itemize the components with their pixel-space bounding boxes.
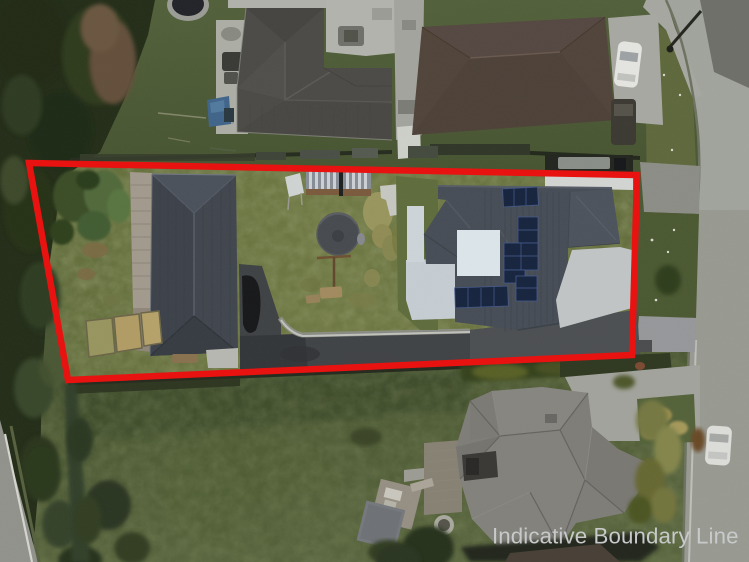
svg-text:Indicative Boundary Line: Indicative Boundary Line bbox=[492, 524, 739, 549]
